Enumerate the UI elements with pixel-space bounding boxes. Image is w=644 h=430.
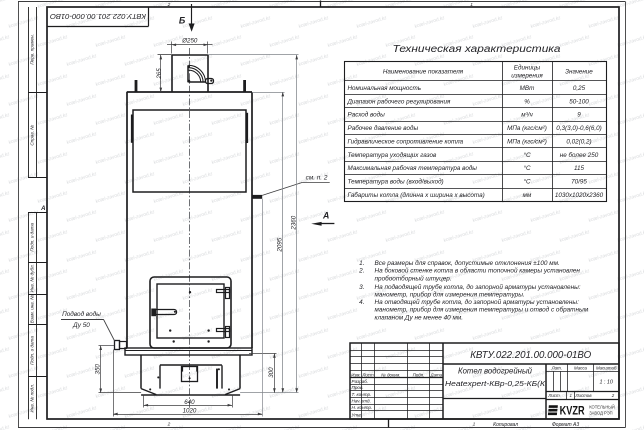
- svg-text:kotel-zavod.kz: kotel-zavod.kz: [588, 171, 620, 186]
- svg-text:kotel-zavod.kz: kotel-zavod.kz: [443, 112, 475, 127]
- svg-text:Максимальная рабочая температу: Максимальная рабочая температура воды: [348, 164, 478, 172]
- svg-text:kotel-zavod.kz: kotel-zavod.kz: [617, 424, 644, 430]
- svg-text:kotel-zavod.kz: kotel-zavod.kz: [0, 268, 11, 283]
- svg-text:Наименование показателя: Наименование показателя: [383, 69, 464, 76]
- svg-text:kotel-zavod.kz: kotel-zavod.kz: [95, 229, 127, 244]
- svg-text:kotel-zavod.kz: kotel-zavod.kz: [0, 424, 11, 430]
- svg-text:kotel-zavod.kz: kotel-zavod.kz: [66, 53, 98, 68]
- svg-text:kotel-zavod.kz: kotel-zavod.kz: [327, 307, 359, 322]
- svg-text:kotel-zavod.kz: kotel-zavod.kz: [37, 73, 69, 88]
- svg-text:kotel-zavod.kz: kotel-zavod.kz: [414, 327, 446, 342]
- svg-text:350: 350: [95, 364, 102, 375]
- svg-text:kotel-zavod.kz: kotel-zavod.kz: [617, 190, 644, 205]
- svg-text:kotel-zavod.kz: kotel-zavod.kz: [124, 365, 156, 380]
- svg-text:kotel-zavod.kz: kotel-zavod.kz: [37, 151, 69, 166]
- svg-text:kotel-zavod.kz: kotel-zavod.kz: [501, 229, 533, 244]
- svg-text:kotel-zavod.kz: kotel-zavod.kz: [269, 34, 301, 49]
- svg-text:kotel-zavod.kz: kotel-zavod.kz: [8, 53, 40, 68]
- svg-text:Температура уходящих газов: Температура уходящих газов: [348, 151, 437, 159]
- svg-text:kotel-zavod.kz: kotel-zavod.kz: [298, 365, 330, 380]
- svg-text:kotel-zavod.kz: kotel-zavod.kz: [182, 287, 214, 302]
- svg-text:70/95: 70/95: [571, 179, 587, 186]
- svg-text:kotel-zavod.kz: kotel-zavod.kz: [8, 171, 40, 186]
- svg-text:kotel-zavod.kz: kotel-zavod.kz: [240, 287, 272, 302]
- svg-text:kotel-zavod.kz: kotel-zavod.kz: [153, 385, 185, 400]
- svg-text:kotel-zavod.kz: kotel-zavod.kz: [588, 287, 620, 302]
- svg-text:см. п. 2: см. п. 2: [306, 174, 328, 181]
- svg-text:kotel-zavod.kz: kotel-zavod.kz: [0, 346, 11, 361]
- svg-text:kotel-zavod.kz: kotel-zavod.kz: [124, 93, 156, 108]
- svg-text:Heatexpert-КВр-0,25-КБ(К: Heatexpert-КВр-0,25-КБ(К: [445, 379, 546, 388]
- svg-text:kotel-zavod.kz: kotel-zavod.kz: [414, 405, 446, 420]
- svg-text:Температура воды (вход/выход): Температура воды (вход/выход): [348, 178, 444, 186]
- svg-text:манометр, прибор для измерения: манометр, прибор для измерения температу…: [375, 306, 589, 314]
- svg-text:kotel-zavod.kz: kotel-zavod.kz: [95, 34, 127, 49]
- svg-text:%: %: [524, 98, 530, 105]
- svg-text:kotel-zavod.kz: kotel-zavod.kz: [37, 385, 69, 400]
- svg-text:kotel-zavod.kz: kotel-zavod.kz: [95, 112, 127, 127]
- svg-text:kotel-zavod.kz: kotel-zavod.kz: [95, 151, 127, 166]
- svg-text:kotel-zavod.kz: kotel-zavod.kz: [124, 249, 156, 264]
- svg-text:kotel-zavod.kz: kotel-zavod.kz: [443, 424, 475, 430]
- svg-text:kotel-zavod.kz: kotel-zavod.kz: [0, 385, 11, 400]
- svg-text:kotel-zavod.kz: kotel-zavod.kz: [414, 53, 446, 68]
- svg-text:kotel-zavod.kz: kotel-zavod.kz: [588, 15, 620, 30]
- svg-text:Масштаб: Масштаб: [596, 365, 617, 370]
- svg-text:kotel-zavod.kz: kotel-zavod.kz: [0, 307, 11, 322]
- svg-text:2: 2: [167, 422, 171, 428]
- svg-text:kotel-zavod.kz: kotel-zavod.kz: [298, 131, 330, 146]
- svg-text:3.: 3.: [359, 284, 364, 291]
- svg-text:КВТУ.022.201.00.000-01ВО: КВТУ.022.201.00.000-01ВО: [50, 12, 146, 21]
- svg-text:kotel-zavod.kz: kotel-zavod.kz: [37, 34, 69, 49]
- svg-text:МВт: МВт: [520, 85, 535, 92]
- svg-text:Рабочее давление воды: Рабочее давление воды: [348, 124, 419, 132]
- svg-text:kotel-zavod.kz: kotel-zavod.kz: [472, 131, 504, 146]
- svg-text:kotel-zavod.kz: kotel-zavod.kz: [298, 405, 330, 420]
- svg-text:Ø250: Ø250: [181, 37, 198, 44]
- svg-text:°С: °С: [523, 164, 531, 172]
- svg-text:Лист: Лист: [361, 372, 374, 377]
- svg-text:клапаном Ду не менее 40 мм.: клапаном Ду не менее 40 мм.: [375, 314, 464, 321]
- svg-text:kotel-zavod.kz: kotel-zavod.kz: [240, 209, 272, 224]
- svg-text:kotel-zavod.kz: kotel-zavod.kz: [95, 73, 127, 88]
- svg-text:Нач.отд.: Нач.отд.: [352, 399, 371, 404]
- svg-text:Котел водогрейный: Котел водогрейный: [458, 367, 533, 376]
- svg-text:kotel-zavod.kz: kotel-zavod.kz: [66, 93, 98, 108]
- svg-text:265: 265: [156, 68, 163, 80]
- svg-text:kotel-zavod.kz: kotel-zavod.kz: [66, 249, 98, 264]
- svg-text:kotel-zavod.kz: kotel-zavod.kz: [95, 268, 127, 283]
- svg-text:Масса: Масса: [574, 365, 588, 370]
- svg-text:9: 9: [577, 112, 581, 119]
- svg-text:kotel-zavod.kz: kotel-zavod.kz: [327, 268, 359, 283]
- svg-text:kotel-zavod.kz: kotel-zavod.kz: [385, 346, 417, 361]
- svg-text:kotel-zavod.kz: kotel-zavod.kz: [617, 385, 644, 400]
- svg-text:kotel-zavod.kz: kotel-zavod.kz: [182, 131, 214, 146]
- svg-text:Т. контр.: Т. контр.: [352, 392, 372, 397]
- svg-text:Техническая характеристика: Техническая характеристика: [393, 44, 562, 55]
- svg-text:300: 300: [268, 367, 275, 378]
- svg-text:kotel-zavod.kz: kotel-zavod.kz: [211, 112, 243, 127]
- svg-text:kotel-zavod.kz: kotel-zavod.kz: [617, 346, 644, 361]
- svg-text:kotel-zavod.kz: kotel-zavod.kz: [37, 190, 69, 205]
- svg-text:МПа (кгс/см²): МПа (кгс/см²): [507, 125, 547, 132]
- svg-text:мм: мм: [523, 192, 532, 199]
- svg-text:kotel-zavod.kz: kotel-zavod.kz: [0, 229, 11, 244]
- svg-text:kotel-zavod.kz: kotel-zavod.kz: [298, 249, 330, 264]
- svg-text:kotel-zavod.kz: kotel-zavod.kz: [530, 209, 562, 224]
- svg-text:kotel-zavod.kz: kotel-zavod.kz: [298, 93, 330, 108]
- svg-text:1: 1: [473, 422, 476, 428]
- svg-text:Н. контр.: Н. контр.: [352, 405, 373, 410]
- svg-text:kotel-zavod.kz: kotel-zavod.kz: [617, 34, 644, 49]
- svg-text:2360: 2360: [290, 215, 297, 230]
- svg-text:kotel-zavod.kz: kotel-zavod.kz: [37, 268, 69, 283]
- svg-text:kotel-zavod.kz: kotel-zavod.kz: [472, 209, 504, 224]
- svg-text:2: 2: [167, 2, 171, 8]
- svg-text:kotel-zavod.kz: kotel-zavod.kz: [240, 405, 272, 420]
- svg-text:МПа (кгс/см²): МПа (кгс/см²): [507, 138, 547, 145]
- svg-text:Взам. инв. №: Взам. инв. №: [30, 295, 35, 323]
- svg-text:kotel-zavod.kz: kotel-zavod.kz: [298, 15, 330, 30]
- svg-text:kotel-zavod.kz: kotel-zavod.kz: [124, 287, 156, 302]
- svg-text:kotel-zavod.kz: kotel-zavod.kz: [0, 190, 11, 205]
- svg-text:kotel-zavod.kz: kotel-zavod.kz: [0, 34, 11, 49]
- svg-text:kotel-zavod.kz: kotel-zavod.kz: [124, 131, 156, 146]
- svg-text:Ду 50: Ду 50: [72, 322, 90, 329]
- svg-text:2.: 2.: [358, 268, 364, 275]
- svg-text:1030х1020х2360: 1030х1020х2360: [555, 192, 604, 199]
- svg-text:kotel-zavod.kz: kotel-zavod.kz: [124, 209, 156, 224]
- svg-text:kotel-zavod.kz: kotel-zavod.kz: [182, 327, 214, 342]
- svg-text:kotel-zavod.kz: kotel-zavod.kz: [298, 287, 330, 302]
- svg-text:kotel-zavod.kz: kotel-zavod.kz: [153, 151, 185, 166]
- svg-text:kotel-zavod.kz: kotel-zavod.kz: [240, 249, 272, 264]
- svg-text:Инв. № дубл.: Инв. № дубл.: [30, 264, 35, 292]
- svg-text:Инв. № подл.: Инв. № подл.: [30, 384, 35, 413]
- svg-text:ЗАВОД РЭП: ЗАВОД РЭП: [589, 410, 612, 415]
- svg-text:kotel-zavod.kz: kotel-zavod.kz: [66, 209, 98, 224]
- svg-text:пробоотборный штуцер.: пробоотборный штуцер.: [375, 274, 452, 282]
- svg-text:А: А: [40, 206, 45, 212]
- svg-text:kotel-zavod.kz: kotel-zavod.kz: [124, 171, 156, 186]
- svg-text:Гидравлическое сопротивление к: Гидравлическое сопротивление котла: [348, 137, 464, 145]
- svg-text:kotel-zavod.kz: kotel-zavod.kz: [588, 53, 620, 68]
- svg-text:°С: °С: [523, 151, 531, 159]
- svg-text:kotel-zavod.kz: kotel-zavod.kz: [530, 15, 562, 30]
- svg-text:kotel-zavod.kz: kotel-zavod.kz: [327, 229, 359, 244]
- svg-text:не более 250: не более 250: [560, 151, 599, 159]
- svg-text:На боковой стенке котла в обла: На боковой стенке котла в области топочн…: [375, 267, 581, 275]
- svg-text:kotel-zavod.kz: kotel-zavod.kz: [211, 73, 243, 88]
- svg-text:Номинальная мощность: Номинальная мощность: [348, 85, 422, 92]
- svg-text:kotel-zavod.kz: kotel-zavod.kz: [327, 346, 359, 361]
- svg-text:2: 2: [611, 393, 615, 398]
- svg-text:kotel-zavod.kz: kotel-zavod.kz: [153, 112, 185, 127]
- svg-text:Диапазон рабочего регулировани: Диапазон рабочего регулирования: [347, 97, 451, 105]
- svg-text:kotel-zavod.kz: kotel-zavod.kz: [356, 209, 388, 224]
- svg-text:kotel-zavod.kz: kotel-zavod.kz: [240, 53, 272, 68]
- svg-text:Пров.: Пров.: [352, 385, 364, 390]
- svg-text:Габариты котла (длинна х ширин: Габариты котла (длинна х ширина х высота…: [348, 191, 485, 199]
- svg-text:Расход воды: Расход воды: [348, 111, 386, 119]
- svg-text:kotel-zavod.kz: kotel-zavod.kz: [443, 229, 475, 244]
- svg-text:kotel-zavod.kz: kotel-zavod.kz: [240, 15, 272, 30]
- svg-text:kotel-zavod.kz: kotel-zavod.kz: [8, 405, 40, 420]
- svg-text:На отводящей трубе котла, до з: На отводящей трубе котла, до запорной ар…: [375, 298, 580, 306]
- svg-text:kotel-zavod.kz: kotel-zavod.kz: [124, 53, 156, 68]
- svg-text:Утв.: Утв.: [352, 412, 362, 417]
- svg-text:kotel-zavod.kz: kotel-zavod.kz: [211, 229, 243, 244]
- svg-text:kotel-zavod.kz: kotel-zavod.kz: [153, 34, 185, 49]
- svg-text:kotel-zavod.kz: kotel-zavod.kz: [37, 112, 69, 127]
- svg-text:Единицы: Единицы: [514, 64, 541, 72]
- svg-text:kotel-zavod.kz: kotel-zavod.kz: [8, 15, 40, 30]
- svg-text:Копировал: Копировал: [493, 422, 518, 428]
- svg-text:kotel-zavod.kz: kotel-zavod.kz: [8, 209, 40, 224]
- svg-text:kotel-zavod.kz: kotel-zavod.kz: [530, 327, 562, 342]
- svg-text:kotel-zavod.kz: kotel-zavod.kz: [588, 93, 620, 108]
- svg-text:Подп.: Подп.: [413, 372, 425, 377]
- svg-text:kotel-zavod.kz: kotel-zavod.kz: [182, 249, 214, 264]
- svg-text:50-100: 50-100: [569, 98, 589, 105]
- svg-text:kotel-zavod.kz: kotel-zavod.kz: [588, 131, 620, 146]
- svg-text:kotel-zavod.kz: kotel-zavod.kz: [182, 171, 214, 186]
- svg-text:kotel-zavod.kz: kotel-zavod.kz: [0, 73, 11, 88]
- svg-text:kotel-zavod.kz: kotel-zavod.kz: [414, 15, 446, 30]
- svg-text:kotel-zavod.kz: kotel-zavod.kz: [153, 268, 185, 283]
- svg-text:1020: 1020: [183, 408, 197, 415]
- svg-text:kotel-zavod.kz: kotel-zavod.kz: [0, 151, 11, 166]
- svg-text:kotel-zavod.kz: kotel-zavod.kz: [472, 171, 504, 186]
- svg-text:kotel-zavod.kz: kotel-zavod.kz: [588, 327, 620, 342]
- svg-text:kotel-zavod.kz: kotel-zavod.kz: [211, 385, 243, 400]
- svg-text:Подвод воды: Подвод воды: [62, 310, 101, 318]
- svg-text:Лист: Лист: [547, 393, 560, 398]
- svg-text:kotel-zavod.kz: kotel-zavod.kz: [617, 112, 644, 127]
- svg-text:kotel-zavod.kz: kotel-zavod.kz: [240, 93, 272, 108]
- svg-text:kotel-zavod.kz: kotel-zavod.kz: [617, 268, 644, 283]
- svg-text:Дата: Дата: [430, 372, 443, 377]
- svg-text:kotel-zavod.kz: kotel-zavod.kz: [588, 209, 620, 224]
- svg-text:kotel-zavod.kz: kotel-zavod.kz: [8, 93, 40, 108]
- svg-text:Изм.: Изм.: [351, 372, 360, 377]
- svg-text:kotel-zavod.kz: kotel-zavod.kz: [472, 15, 504, 30]
- svg-text:kotel-zavod.kz: kotel-zavod.kz: [617, 73, 644, 88]
- svg-text:kotel-zavod.kz: kotel-zavod.kz: [124, 327, 156, 342]
- svg-text:2095: 2095: [277, 237, 284, 252]
- svg-text:kotel-zavod.kz: kotel-zavod.kz: [472, 405, 504, 420]
- svg-text:kotel-zavod.kz: kotel-zavod.kz: [327, 424, 359, 430]
- svg-text:КВТУ.022.201.00.000-01ВО: КВТУ.022.201.00.000-01ВО: [470, 350, 591, 361]
- svg-text:kotel-zavod.kz: kotel-zavod.kz: [211, 268, 243, 283]
- svg-text:kotel-zavod.kz: kotel-zavod.kz: [414, 209, 446, 224]
- svg-text:kotel-zavod.kz: kotel-zavod.kz: [356, 15, 388, 30]
- svg-text:КОТЕЛЬНЫЙ: КОТЕЛЬНЫЙ: [589, 405, 615, 410]
- svg-text:kotel-zavod.kz: kotel-zavod.kz: [8, 249, 40, 264]
- svg-text:kotel-zavod.kz: kotel-zavod.kz: [66, 405, 98, 420]
- svg-text:kotel-zavod.kz: kotel-zavod.kz: [559, 229, 591, 244]
- svg-text:kotel-zavod.kz: kotel-zavod.kz: [37, 346, 69, 361]
- svg-text:kotel-zavod.kz: kotel-zavod.kz: [211, 151, 243, 166]
- svg-text:kotel-zavod.kz: kotel-zavod.kz: [327, 34, 359, 49]
- svg-text:kotel-zavod.kz: kotel-zavod.kz: [66, 327, 98, 342]
- svg-text:kotel-zavod.kz: kotel-zavod.kz: [530, 171, 562, 186]
- svg-text:°С: °С: [523, 178, 531, 186]
- svg-text:0,25: 0,25: [573, 85, 586, 92]
- svg-text:kotel-zavod.kz: kotel-zavod.kz: [95, 190, 127, 205]
- svg-text:А: А: [322, 210, 329, 220]
- svg-text:kotel-zavod.kz: kotel-zavod.kz: [617, 151, 644, 166]
- svg-text:kotel-zavod.kz: kotel-zavod.kz: [356, 327, 388, 342]
- svg-text:kotel-zavod.kz: kotel-zavod.kz: [472, 93, 504, 108]
- svg-text:kotel-zavod.kz: kotel-zavod.kz: [124, 405, 156, 420]
- svg-text:Подп. и дата: Подп. и дата: [30, 222, 35, 251]
- svg-text:kotel-zavod.kz: kotel-zavod.kz: [240, 131, 272, 146]
- svg-text:kotel-zavod.kz: kotel-zavod.kz: [617, 307, 644, 322]
- svg-text:kotel-zavod.kz: kotel-zavod.kz: [530, 93, 562, 108]
- svg-text:kotel-zavod.kz: kotel-zavod.kz: [0, 0, 11, 10]
- svg-text:kotel-zavod.kz: kotel-zavod.kz: [66, 287, 98, 302]
- svg-text:kotel-zavod.kz: kotel-zavod.kz: [472, 327, 504, 342]
- svg-text:kotel-zavod.kz: kotel-zavod.kz: [66, 131, 98, 146]
- svg-text:kotel-zavod.kz: kotel-zavod.kz: [240, 327, 272, 342]
- svg-text:kotel-zavod.kz: kotel-zavod.kz: [443, 151, 475, 166]
- svg-text:№ докум.: № докум.: [381, 372, 400, 377]
- svg-text:Все размеры для справок, допус: Все размеры для справок, допустимые откл…: [375, 259, 560, 267]
- svg-text:kotel-zavod.kz: kotel-zavod.kz: [298, 53, 330, 68]
- svg-text:kotel-zavod.kz: kotel-zavod.kz: [385, 229, 417, 244]
- svg-text:kotel-zavod.kz: kotel-zavod.kz: [240, 171, 272, 186]
- svg-text:kotel-zavod.kz: kotel-zavod.kz: [37, 424, 69, 430]
- svg-text:0,3(3,0)-0,6(6,0): 0,3(3,0)-0,6(6,0): [556, 125, 602, 132]
- svg-text:м³/ч: м³/ч: [521, 112, 533, 119]
- svg-text:kotel-zavod.kz: kotel-zavod.kz: [356, 53, 388, 68]
- svg-text:Б: Б: [179, 16, 186, 26]
- svg-text:kotel-zavod.kz: kotel-zavod.kz: [472, 53, 504, 68]
- svg-text:kotel-zavod.kz: kotel-zavod.kz: [8, 365, 40, 380]
- svg-text:1 : 10: 1 : 10: [599, 379, 613, 385]
- svg-text:Лит.: Лит.: [551, 365, 562, 370]
- svg-text:kotel-zavod.kz: kotel-zavod.kz: [211, 34, 243, 49]
- svg-text:Формат А3: Формат А3: [552, 422, 580, 428]
- svg-text:kotel-zavod.kz: kotel-zavod.kz: [66, 365, 98, 380]
- svg-text:kotel-zavod.kz: kotel-zavod.kz: [182, 209, 214, 224]
- svg-text:kotel-zavod.kz: kotel-zavod.kz: [211, 307, 243, 322]
- svg-text:манометр, прибор для измерения: манометр, прибор для измерения температу…: [375, 291, 525, 299]
- svg-text:kotel-zavod.kz: kotel-zavod.kz: [269, 424, 301, 430]
- svg-text:640: 640: [184, 399, 195, 406]
- svg-text:Разраб.: Разраб.: [352, 379, 369, 384]
- svg-text:kotel-zavod.kz: kotel-zavod.kz: [153, 229, 185, 244]
- svg-text:1.: 1.: [359, 260, 364, 267]
- svg-text:4.: 4.: [359, 299, 364, 306]
- svg-text:kotel-zavod.kz: kotel-zavod.kz: [182, 93, 214, 108]
- svg-text:На подводящей трубе котла, до: На подводящей трубе котла, до запорной а…: [375, 283, 581, 291]
- svg-text:Перв. примен.: Перв. примен.: [30, 34, 35, 65]
- svg-text:kotel-zavod.kz: kotel-zavod.kz: [8, 327, 40, 342]
- svg-text:измерения: измерения: [511, 73, 543, 80]
- svg-text:kotel-zavod.kz: kotel-zavod.kz: [8, 131, 40, 146]
- svg-text:0,02(0,2): 0,02(0,2): [566, 138, 591, 145]
- svg-text:KVZR: KVZR: [560, 406, 586, 418]
- svg-text:kotel-zavod.kz: kotel-zavod.kz: [298, 327, 330, 342]
- svg-text:kotel-zavod.kz: kotel-zavod.kz: [559, 34, 591, 49]
- svg-text:115: 115: [574, 165, 585, 172]
- svg-text:Листов: Листов: [575, 393, 593, 398]
- svg-text:Справ. №: Справ. №: [30, 125, 35, 146]
- svg-text:kotel-zavod.kz: kotel-zavod.kz: [95, 424, 127, 430]
- svg-text:kotel-zavod.kz: kotel-zavod.kz: [66, 171, 98, 186]
- svg-text:kotel-zavod.kz: kotel-zavod.kz: [617, 229, 644, 244]
- svg-text:1: 1: [470, 2, 473, 8]
- svg-text:Значение: Значение: [565, 69, 593, 76]
- svg-text:kotel-zavod.kz: kotel-zavod.kz: [211, 424, 243, 430]
- svg-text:kotel-zavod.kz: kotel-zavod.kz: [385, 424, 417, 430]
- svg-text:kotel-zavod.kz: kotel-zavod.kz: [182, 15, 214, 30]
- svg-text:kotel-zavod.kz: kotel-zavod.kz: [588, 249, 620, 264]
- svg-text:kotel-zavod.kz: kotel-zavod.kz: [37, 229, 69, 244]
- svg-text:Подп. и дата: Подп. и дата: [30, 336, 35, 365]
- svg-text:kotel-zavod.kz: kotel-zavod.kz: [0, 112, 11, 127]
